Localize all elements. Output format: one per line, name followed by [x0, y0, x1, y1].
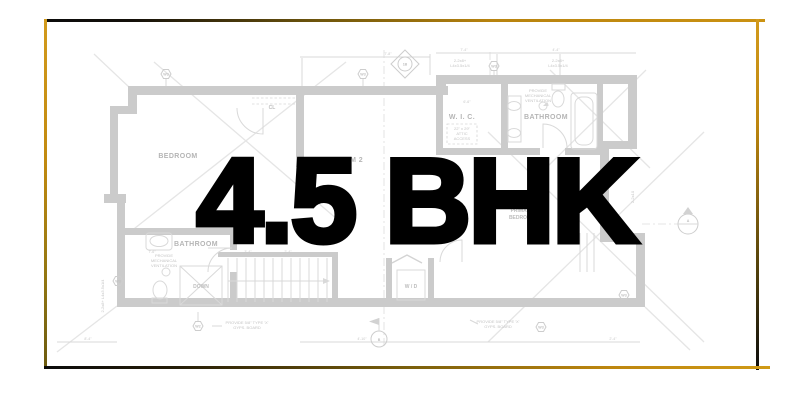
washer-dryer-label: W / D	[405, 284, 418, 290]
room-label-primary-2: BEDROOM	[509, 215, 535, 221]
wall-tag-w3: W3	[536, 323, 546, 332]
beam-note-2b: L4x3.5x1/4	[548, 63, 568, 68]
window-tag-1b: 1B	[391, 50, 419, 78]
wall-tag-w3: W3	[161, 70, 171, 87]
beam-note-1b: L4x3.5x1/4	[450, 63, 470, 68]
room-label-wic: W. I. C.	[449, 114, 475, 121]
room-label-closet: CL	[269, 105, 276, 111]
vent-note-bottom-3: VENTILATION	[151, 263, 177, 268]
room-label-bathroom-bottom: BATHROOM	[174, 241, 218, 248]
dim-label: 2'-4"	[284, 250, 292, 254]
svg-text:B: B	[378, 338, 381, 342]
floor-plan-blueprint: W / D BEDROOM BEDROOM 2 W. I. C.	[0, 0, 800, 400]
dim-label: 4'-4"	[552, 48, 560, 52]
stair-down-label: DOWN	[193, 284, 209, 290]
dim-label: 3'-4"	[244, 250, 252, 254]
washer-dryer-closet: W / D	[392, 255, 425, 300]
section-marker-a: A	[678, 207, 698, 234]
svg-text:W3: W3	[360, 73, 365, 77]
room-label-primary-1: PRIMARY	[511, 208, 535, 214]
dim-label: 2'-4"	[609, 337, 617, 341]
dim-label: 7'-8"	[384, 52, 392, 56]
vent-note-top-3: VENTILATION	[525, 98, 551, 103]
svg-text:W3: W3	[163, 73, 168, 77]
wall-tag-w2: W2	[193, 312, 203, 331]
svg-text:W3: W3	[491, 65, 496, 69]
plan-walls	[104, 75, 645, 307]
dim-label: 6'-6"	[463, 100, 471, 104]
dim-label: 8'-4"	[84, 337, 92, 341]
svg-text:1B: 1B	[403, 63, 408, 67]
dim-label: 7'-6"	[148, 250, 156, 254]
svg-text:W3: W3	[538, 326, 543, 330]
bathroom-top-fixtures	[508, 84, 598, 272]
dim-label: 4'-10"	[357, 337, 367, 341]
room-label-bedroom: BEDROOM	[158, 153, 197, 160]
svg-text:A: A	[687, 219, 690, 223]
stairs	[228, 258, 330, 302]
gyp-note-2b: GYPS. BOARD	[484, 324, 512, 329]
svg-text:W3: W3	[115, 280, 120, 284]
beam-note-left: 2-2x8+ L4x3.5x1/4	[100, 279, 105, 313]
dim-label: 7'-4"	[460, 48, 468, 52]
gyp-note-1b: GYPS. BOARD	[233, 325, 261, 330]
room-label-bathroom-top: BATHROOM	[524, 114, 568, 121]
wall-tag-w3: W3	[358, 70, 368, 87]
room-label-bedroom2: BEDROOM 2	[317, 157, 363, 164]
joist-note-right: 2-2x10	[630, 190, 635, 203]
svg-text:W2: W2	[195, 325, 200, 329]
svg-text:W3: W3	[621, 294, 626, 298]
attic-note-3: ACCESS	[454, 136, 471, 141]
